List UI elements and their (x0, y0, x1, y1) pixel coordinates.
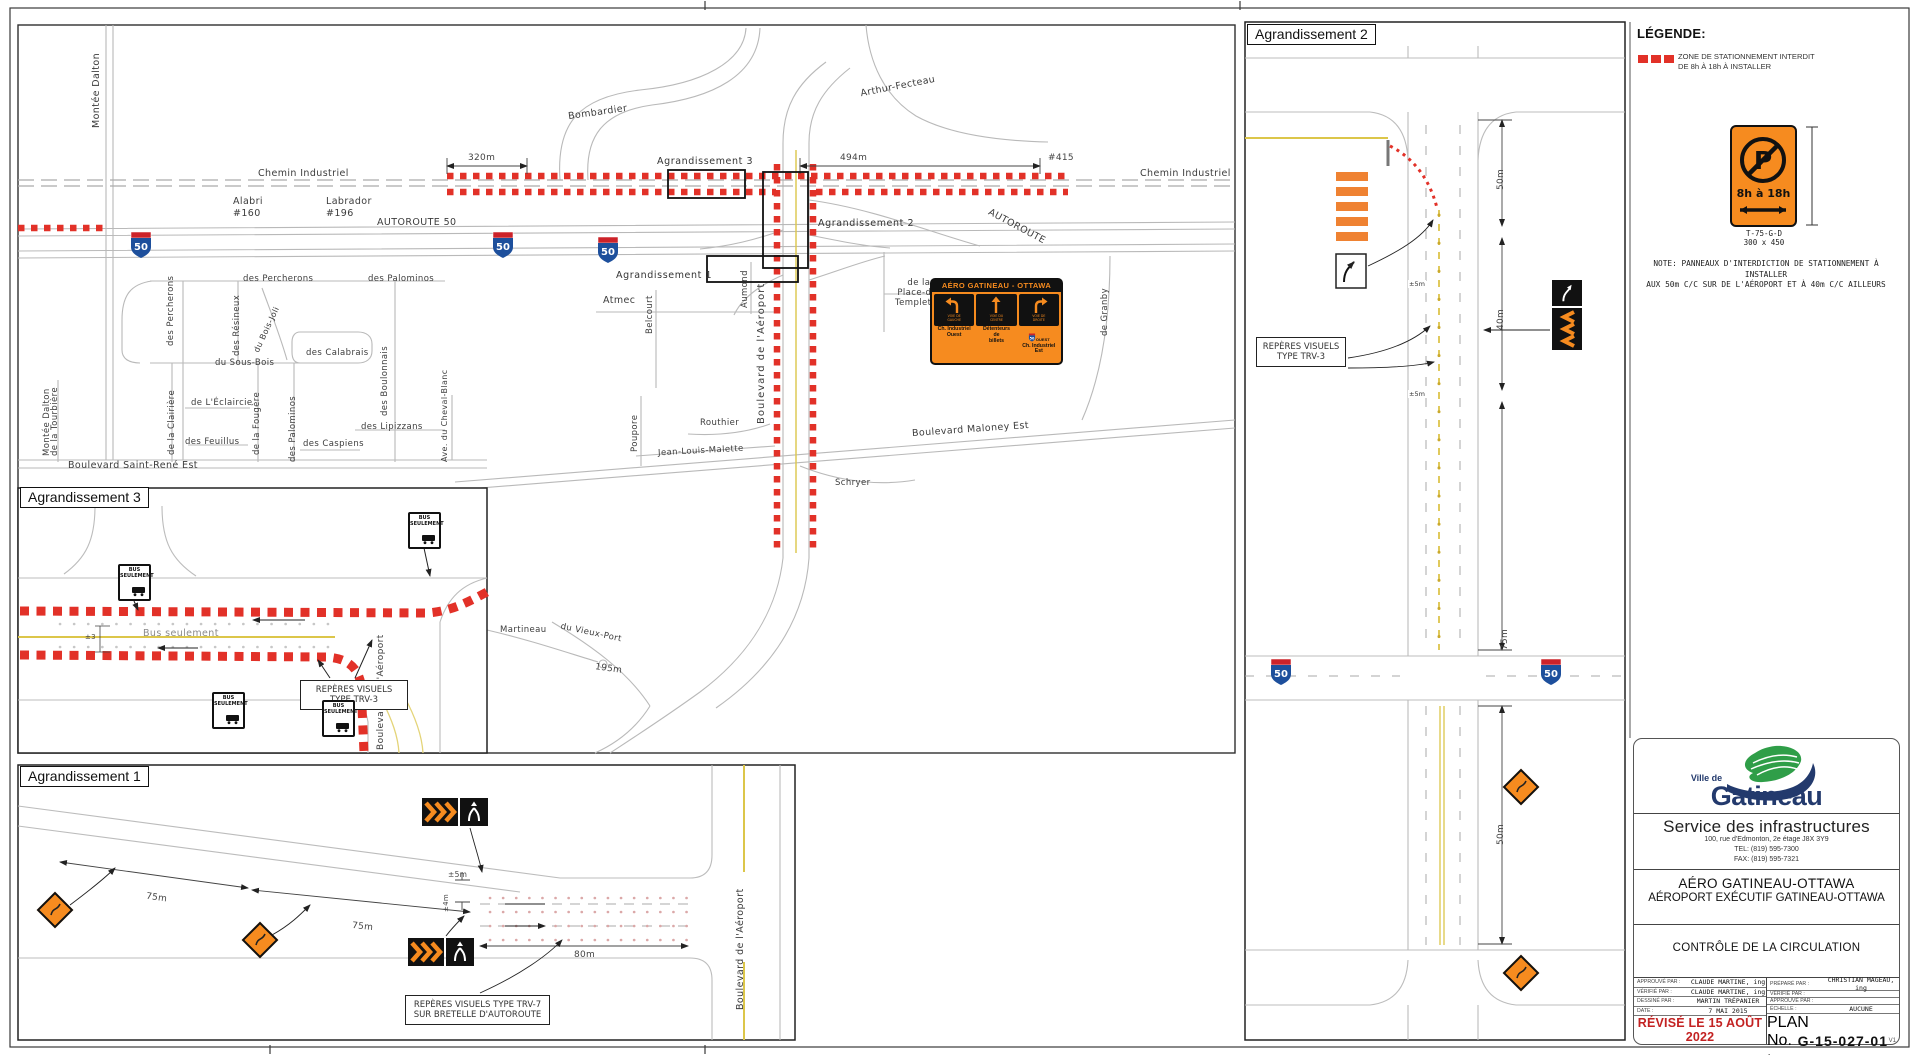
department-tel: TEL: (819) 595-7300 (1634, 846, 1899, 853)
curve-right-arrow-icon (1028, 295, 1050, 315)
chevrons-right-icon (409, 940, 443, 964)
dim-320m: 320m (468, 153, 495, 163)
street-label-percherons-v: des Percherons (166, 276, 176, 346)
autoroute-50-shield: 50 (1268, 658, 1294, 686)
street-label-palominos-h: des Palominos (368, 274, 434, 284)
lane-merge-icon (448, 940, 472, 964)
no-parking-sign-size: 300 x 450 (1720, 238, 1808, 247)
civic-415: #415 (1048, 153, 1074, 163)
inset2-pm5m-a: ±5m (1408, 280, 1426, 288)
guide-sign-lane-right: VOIE DE DROITE (1019, 294, 1059, 326)
diamond-glyph (1510, 776, 1532, 798)
autoroute-50-shield: 50 (595, 236, 621, 264)
bus-icon (131, 586, 147, 597)
callout-label-agrandissement-3: Agrandissement 3 (657, 156, 753, 167)
table-row: ÉCHELLE : AUCUNE (1767, 1005, 1899, 1014)
bus-icon (335, 722, 351, 733)
aero-gatineau-guide-sign: AÉRO GATINEAU - OTTAWA VOIE DE GAUCHE VO… (930, 278, 1063, 365)
street-label-feuillus: des Feuillus (185, 437, 240, 447)
lane-caption: VOIE DE GAUCHE (947, 315, 961, 322)
guide-sign-dest-centre: Détenteurs de billets (976, 327, 1016, 361)
row-value: CLAUDE MARTINE, ing (1690, 988, 1766, 996)
street-label-sous-bois: du Sous-Bois (215, 358, 274, 368)
title-block: Ville de Gatineau Service des infrastruc… (1633, 738, 1900, 1045)
legend-red-dash-swatch (1651, 55, 1661, 63)
inset3-title: Agrandissement 3 (20, 487, 149, 508)
street-label-saint-rene: Boulevard Saint-René Est (68, 461, 198, 471)
inset2-dim-50m-a: 50m (1496, 169, 1506, 190)
street-label-routhier: Routhier (700, 418, 739, 428)
guide-sign-lane-centre: VOIE DU CENTRE (976, 294, 1016, 326)
inset2-title: Agrandissement 2 (1247, 24, 1376, 45)
plan-number-label: PLAN No. : (1767, 1014, 1797, 1055)
street-label-eclaircie: de L'Éclaircie (191, 398, 253, 408)
row-label: APPROUVÉ PAR : (1634, 979, 1690, 985)
street-label-granby: de Granby (1100, 288, 1110, 336)
autoroute-50-shield: 50 (1538, 658, 1564, 686)
bus-sign-line2: SEULEMENT (120, 574, 149, 580)
chevron-merge-sign (422, 798, 488, 826)
traffic-control-plan-sheet: Montée Dalton Chemin Industriel Chemin I… (0, 0, 1919, 1055)
inset1-dim-pm5m: ±5m (448, 870, 467, 879)
diamond-glyph (249, 929, 271, 951)
street-label-fougere: de la Fougère (252, 392, 262, 455)
svg-text:50: 50 (1274, 669, 1288, 680)
civic-label-labrador: Labrador (326, 197, 372, 207)
street-label-poupore: Poupore (630, 415, 640, 452)
legend-sign-dim (1806, 127, 1818, 225)
inset1-reperes-note: REPÈRES VISUELS TYPE TRV-7 SUR BRETELLE … (405, 995, 550, 1025)
inset1-title: Agrandissement 1 (20, 766, 149, 787)
table-row: APPROUVÉ PAR : (1767, 998, 1899, 1005)
plan-drawing-canvas (0, 0, 1919, 1055)
legend-zone-item-text: ZONE DE STATIONNEMENT INTERDIT DE 8h À 1… (1678, 52, 1815, 71)
street-label-palominos-v: des Palominos (288, 396, 298, 462)
legend-note-text: NOTE: PANNEAUX D'INTERDICTION DE STATION… (1636, 259, 1896, 291)
shield-direction-label: OUEST (1036, 337, 1050, 342)
street-label-calabrais: des Calabrais (306, 348, 369, 358)
lane-caption: VOIE DU CENTRE (990, 315, 1003, 322)
diamond-glyph (1510, 962, 1532, 984)
civic-label-alabri: Alabri (233, 197, 263, 207)
street-label-martineau: Martineau (500, 625, 547, 635)
bus-seulement-sign: BUS SEULEMENT (408, 512, 441, 549)
inset2-panel (1245, 22, 1625, 1040)
callout-label-agrandissement-1: Agrandissement 1 (616, 270, 712, 281)
inset2-dim-75m: 75m (1500, 629, 1510, 650)
inset3-bus-seulement-label: Bus seulement (143, 629, 219, 639)
dest-text: Ch. Industriel Est (1019, 344, 1059, 356)
street-label-clairiere: de la Clairière (167, 390, 177, 455)
department-name: Service des infrastructures (1634, 817, 1899, 837)
table-row: PRÉPARÉ PAR : CHRISTIAN MAGEAU, ing (1767, 978, 1899, 991)
row-value: AUCUNE (1823, 1005, 1899, 1013)
dim-494m: 494m (840, 153, 867, 163)
bus-sign-line2: SEULEMENT (324, 710, 353, 716)
street-label-boulonnais: des Boulonnais (380, 346, 390, 416)
chevron-left-merge-sign (1552, 280, 1582, 350)
row-value: 7 MAI 2015 (1690, 1007, 1766, 1015)
no-parking-sign-code: T-75-G-D (1720, 229, 1808, 238)
legend-red-dash-swatch (1664, 55, 1674, 63)
no-parking-sign: P 8h à 18h (1730, 125, 1797, 227)
lane-shift-icon (1556, 282, 1578, 304)
plan-number: G-15-027-01 (1797, 1033, 1889, 1049)
no-parking-symbol: P (1732, 127, 1794, 224)
department-address: 100, rue d'Edmonton, 2e étage J8X 3Y9 (1634, 836, 1899, 843)
curve-left-arrow-icon (943, 295, 965, 315)
table-row: VÉRIFIÉ PAR : (1767, 991, 1899, 998)
svg-text:50: 50 (496, 242, 510, 253)
legend-title: LÉGENDE: (1637, 26, 1706, 41)
inset2-dim-50m-b: 50m (1496, 824, 1506, 845)
row-label: DATE : (1634, 1008, 1690, 1014)
title-block-divider (1634, 813, 1899, 814)
autoroute-50-shield: 50 (128, 231, 154, 259)
street-label-lipizzans: des Lipizzans (361, 422, 423, 432)
street-label-atmec: Atmec (603, 296, 635, 306)
row-label: DESSINÉ PAR : (1634, 998, 1690, 1004)
street-label-blvd-aeroport: Boulevard de l'Aéroport (757, 283, 767, 424)
revised-cell: RÉVISÉ LE 15 AOÛT 2022 (1634, 1016, 1766, 1044)
row-label: APPROUVÉ PAR : (1767, 998, 1823, 1004)
street-label-autoroute-50: AUTOROUTE 50 (377, 218, 456, 228)
lane-caption: VOIE DE DROITE (1032, 315, 1045, 322)
bus-sign-line2: SEULEMENT (214, 702, 243, 708)
svg-text:50: 50 (601, 247, 615, 258)
inset1-dim-75m-b: 75m (352, 921, 374, 933)
street-label-resineux: des Résineux (232, 295, 242, 356)
mini-50-shield-icon: 50 (1028, 333, 1036, 342)
inset2-dim-40m: 40m (1496, 309, 1506, 330)
approval-table: APPROUVÉ PAR : CLAUDE MARTINE, ing VÉRIF… (1634, 977, 1899, 1044)
plan-number-cell: PLAN No. : G-15-027-01 V1 (1767, 1014, 1899, 1055)
inset2-pm5m-b: ±5m (1408, 390, 1426, 398)
svg-text:50: 50 (1544, 669, 1558, 680)
title-block-divider (1634, 924, 1899, 925)
approval-table-right-column: PRÉPARÉ PAR : CHRISTIAN MAGEAU, ing VÉRI… (1766, 978, 1899, 1044)
row-label: VÉRIFIÉ PAR : (1767, 991, 1823, 997)
street-label-schryer: Schryer (835, 478, 871, 488)
chevron-merge-sign (408, 938, 474, 966)
row-label: VÉRIFIÉ PAR : (1634, 989, 1690, 995)
row-label: ÉCHELLE : (1767, 1006, 1823, 1012)
row-value: CLAUDE MARTINE, ing (1690, 978, 1766, 986)
table-row: VÉRIFIÉ PAR : CLAUDE MARTINE, ing (1634, 988, 1766, 998)
civic-label-196: #196 (326, 209, 354, 219)
street-label-chemin-industriel-e: Chemin Industriel (1140, 169, 1231, 179)
approval-table-left-column: APPROUVÉ PAR : CLAUDE MARTINE, ing VÉRIF… (1634, 978, 1766, 1044)
guide-sign-lane-left: VOIE DE GAUCHE (934, 294, 974, 326)
street-label-percherons-h: des Percherons (243, 274, 313, 284)
bus-seulement-sign: BUS SEULEMENT (212, 692, 245, 729)
bus-icon (225, 714, 241, 725)
callout-label-agrandissement-2: Agrandissement 2 (818, 218, 914, 229)
street-label-montee-dalton: Montée Dalton (92, 53, 102, 128)
guide-sign-dest-left: Ch. Industriel Ouest (934, 327, 974, 361)
bus-sign-line2: SEULEMENT (410, 522, 439, 528)
no-parking-hours: 8h à 18h (1732, 187, 1795, 200)
inset2-lane-shift-sign (1336, 254, 1366, 288)
svg-text:50: 50 (1030, 336, 1035, 340)
civic-label-160: #160 (233, 209, 261, 219)
legend-red-dash-swatch (1638, 55, 1648, 63)
chevrons-left-icon (1555, 310, 1579, 348)
chevrons-right-icon (423, 800, 457, 824)
bus-icon (421, 534, 437, 545)
inset1-blvd-aeroport-label: Boulevard de l'Aéroport (736, 888, 746, 1010)
department-fax: FAX: (819) 595-7321 (1634, 856, 1899, 863)
inset1-dim-80m: 80m (574, 950, 595, 960)
table-row: DESSINÉ PAR : MARTIN TRÉPANIER (1634, 997, 1766, 1007)
diamond-glyph (44, 899, 66, 921)
title-block-divider (1634, 869, 1899, 870)
revised-date: RÉVISÉ LE 15 AOÛT 2022 (1634, 1016, 1766, 1044)
plan-version: V1 (1889, 1038, 1899, 1044)
row-value: MARTIN TRÉPANIER (1690, 997, 1766, 1005)
street-label-montee-dalton-s: Montée Dalton (42, 388, 52, 456)
street-label-aumond: Aumond (740, 270, 750, 308)
bus-seulement-sign: BUS SEULEMENT (118, 564, 151, 601)
project-name-line2: AÉROPORT EXÉCUTIF GATINEAU-OTTAWA (1634, 892, 1899, 904)
straight-arrow-icon (985, 295, 1007, 315)
table-row: APPROUVÉ PAR : CLAUDE MARTINE, ing (1634, 978, 1766, 988)
bus-seulement-sign: BUS SEULEMENT (322, 700, 355, 737)
inset1-dim-pm4m: ±4m (442, 894, 450, 912)
guide-sign-dest-right: 50 OUEST Ch. Industriel Est (1019, 327, 1059, 361)
inset2-reperes-note: REPÈRES VISUELS TYPE TRV-3 (1256, 337, 1346, 367)
project-name-line1: AÉRO GATINEAU-OTTAWA (1634, 876, 1899, 891)
street-label-belcourt: Belcourt (645, 295, 655, 334)
svg-text:50: 50 (134, 242, 148, 253)
inset3-pm3-dim: ±3 (85, 633, 96, 641)
row-label: PRÉPARÉ PAR : (1767, 981, 1823, 987)
street-label-chemin-industriel-w: Chemin Industriel (258, 169, 349, 179)
street-label-cheval-blanc: Ave. du Cheval-Blanc (440, 369, 450, 462)
table-row: DATE : 7 MAI 2015 (1634, 1007, 1766, 1017)
street-label-caspiens: des Caspiens (303, 439, 364, 449)
autoroute-50-shield: 50 (490, 231, 516, 259)
lane-merge-icon (462, 800, 486, 824)
guide-sign-header: AÉRO GATINEAU - OTTAWA (932, 280, 1061, 292)
logo-gatineau: Gatineau (1634, 781, 1899, 812)
sheet-title: CONTRÔLE DE LA CIRCULATION (1634, 942, 1899, 954)
row-value: CHRISTIAN MAGEAU, ing (1823, 976, 1899, 992)
